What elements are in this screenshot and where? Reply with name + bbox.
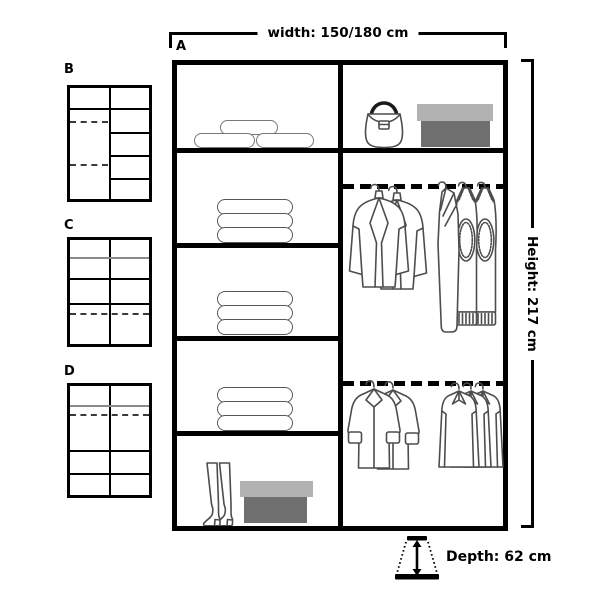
variant-c-thumbnail[interactable] bbox=[67, 237, 152, 347]
shelf-line bbox=[70, 108, 149, 110]
divider bbox=[109, 240, 111, 344]
shelf-line bbox=[70, 473, 149, 475]
width-dimension-label: width: 150/180 cm bbox=[258, 25, 419, 41]
left-shelf-3 bbox=[177, 336, 338, 341]
width-dimension-bracket: width: 150/180 cm bbox=[169, 32, 507, 48]
wardrobe-diagram-page: width: 150/180 cm A Height: 217 cm B C D bbox=[0, 0, 600, 600]
top-shelf bbox=[177, 148, 503, 153]
left-shelf-4 bbox=[177, 431, 338, 436]
shelf-line bbox=[70, 303, 149, 305]
variant-c-label: C bbox=[64, 218, 74, 233]
boots-icon bbox=[200, 462, 240, 526]
rail-line bbox=[70, 164, 108, 166]
main-layout-label: A bbox=[176, 39, 186, 54]
center-divider bbox=[338, 65, 343, 526]
left-shelf-2 bbox=[177, 243, 338, 248]
sweaters-on-hangers-icon bbox=[433, 180, 503, 334]
divider bbox=[109, 386, 111, 495]
rail-line bbox=[70, 313, 149, 315]
height-dimension-label: Height: 217 cm bbox=[523, 228, 541, 360]
variant-d-thumbnail[interactable] bbox=[67, 383, 152, 498]
coats-on-hangers-icon bbox=[346, 377, 436, 479]
handbag-icon bbox=[361, 92, 407, 149]
shelf-line bbox=[70, 278, 149, 280]
variant-b-thumbnail[interactable] bbox=[67, 85, 152, 202]
variant-b-label: B bbox=[64, 62, 74, 77]
shirts-on-hangers-icon bbox=[437, 377, 505, 473]
jackets-on-hangers-icon bbox=[345, 181, 433, 293]
shelf-line bbox=[70, 450, 149, 452]
rail-line bbox=[70, 121, 108, 123]
shelf-line bbox=[111, 155, 149, 157]
divider bbox=[109, 88, 111, 199]
depth-arrow-icon bbox=[393, 536, 441, 580]
variant-d-label: D bbox=[64, 364, 75, 379]
shelf-line bbox=[70, 405, 149, 407]
shelf-line bbox=[111, 178, 149, 180]
depth-dimension-label: Depth: 62 cm bbox=[446, 549, 552, 565]
rail-line bbox=[70, 414, 149, 416]
shelf-line bbox=[70, 257, 149, 259]
shelf-line bbox=[111, 132, 149, 134]
rolled-textile-icon bbox=[256, 133, 314, 148]
rolled-textile-icon bbox=[194, 133, 255, 148]
